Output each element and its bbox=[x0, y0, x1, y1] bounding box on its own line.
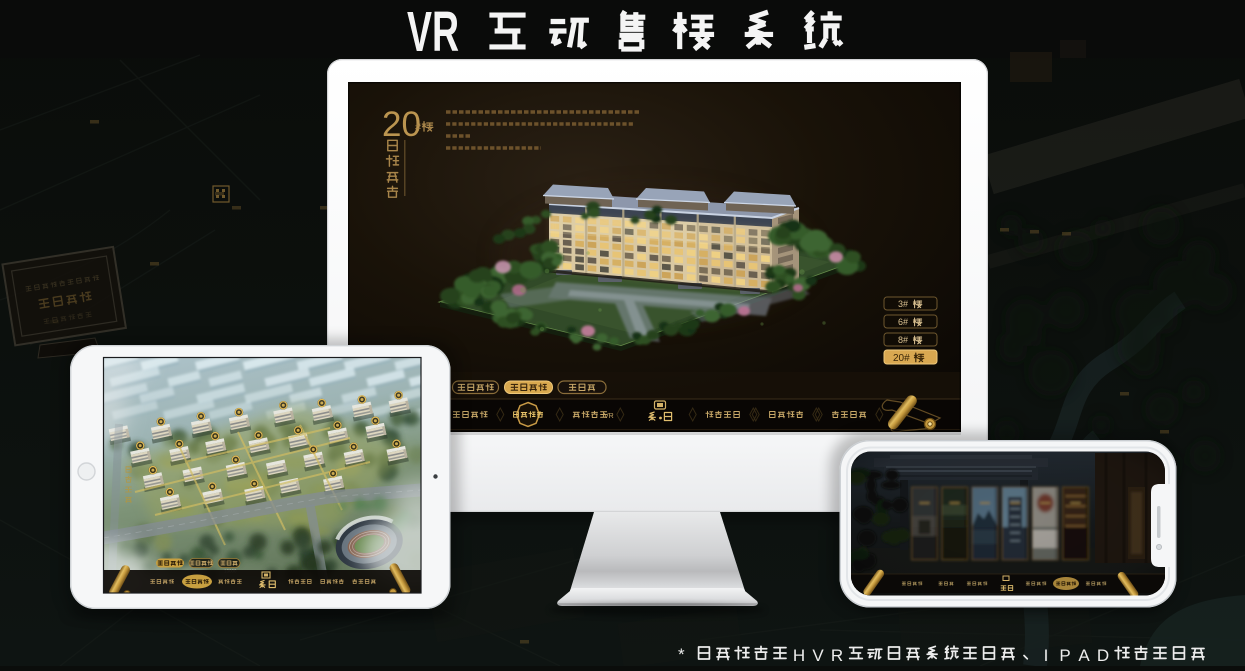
svg-text:VR: VR bbox=[407, 0, 459, 64]
svg-text:A: A bbox=[1078, 646, 1090, 665]
svg-text:D: D bbox=[1097, 646, 1109, 665]
svg-text:V: V bbox=[812, 646, 824, 665]
svg-text:I: I bbox=[1044, 646, 1049, 665]
svg-text:P: P bbox=[1059, 646, 1070, 665]
svg-text:20#: 20# bbox=[893, 353, 910, 364]
svg-text:8#: 8# bbox=[898, 335, 908, 345]
svg-text:VR: VR bbox=[604, 413, 614, 420]
svg-text:3#: 3# bbox=[898, 299, 908, 309]
svg-text:6#: 6# bbox=[898, 317, 908, 327]
svg-text:H: H bbox=[793, 646, 805, 665]
svg-text:#: # bbox=[415, 122, 422, 134]
svg-text:*: * bbox=[678, 645, 685, 664]
svg-text:R: R bbox=[831, 646, 843, 665]
